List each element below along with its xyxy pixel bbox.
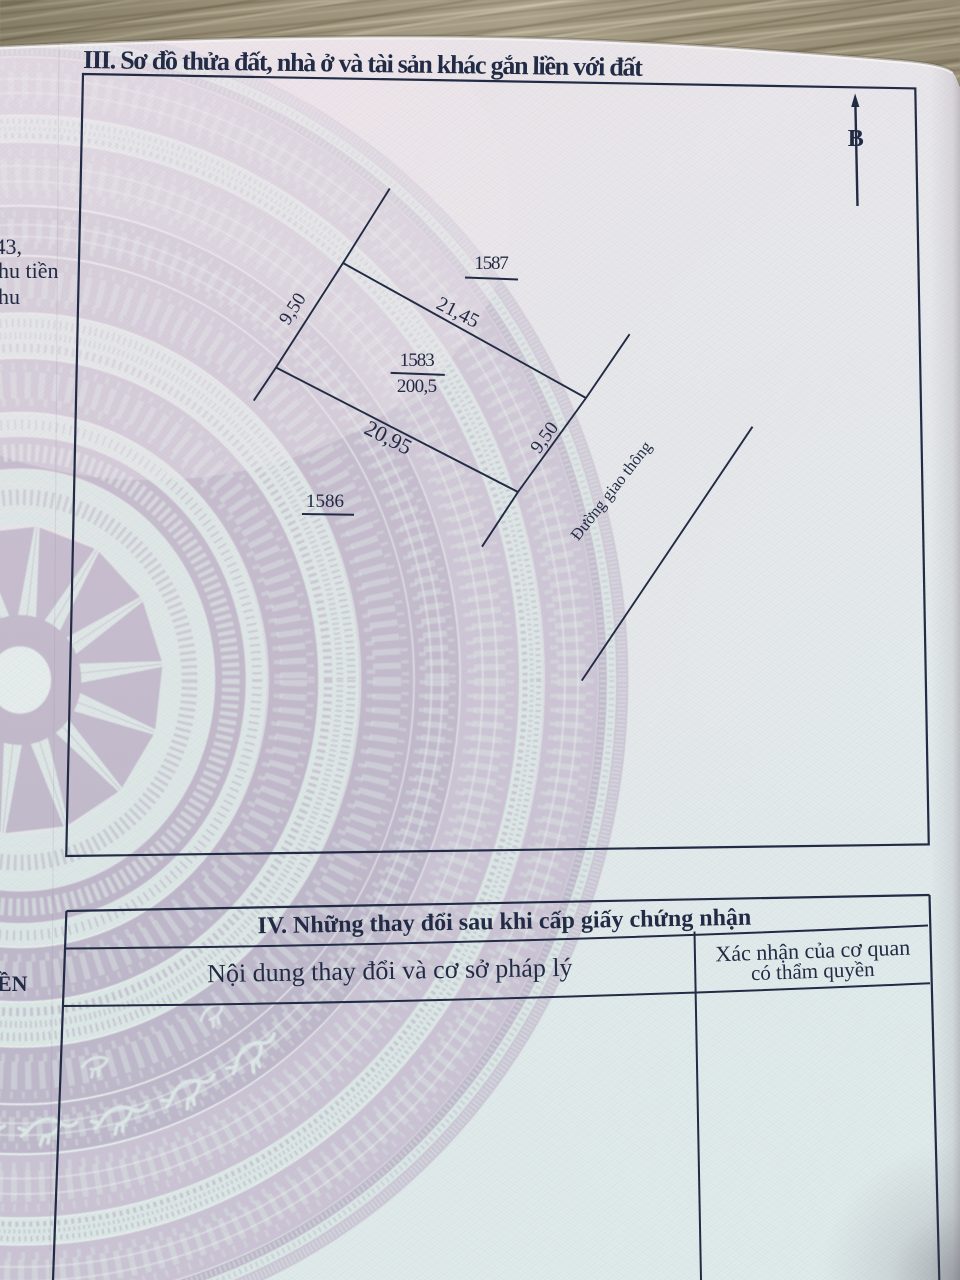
svg-text:ỀN: ỀN — [0, 971, 28, 996]
svg-text:200,5: 200,5 — [397, 376, 437, 397]
svg-text:1587: 1587 — [474, 253, 508, 274]
svg-text:B: B — [848, 126, 864, 152]
svg-text:1586: 1586 — [306, 491, 344, 512]
svg-text:hu tiền: hu tiền — [0, 258, 59, 283]
svg-text:1583: 1583 — [400, 350, 435, 371]
svg-text:43,: 43, — [0, 234, 22, 259]
svg-text:hu: hu — [0, 284, 20, 309]
svg-text:có thẩm quyền: có thẩm quyền — [751, 957, 876, 985]
